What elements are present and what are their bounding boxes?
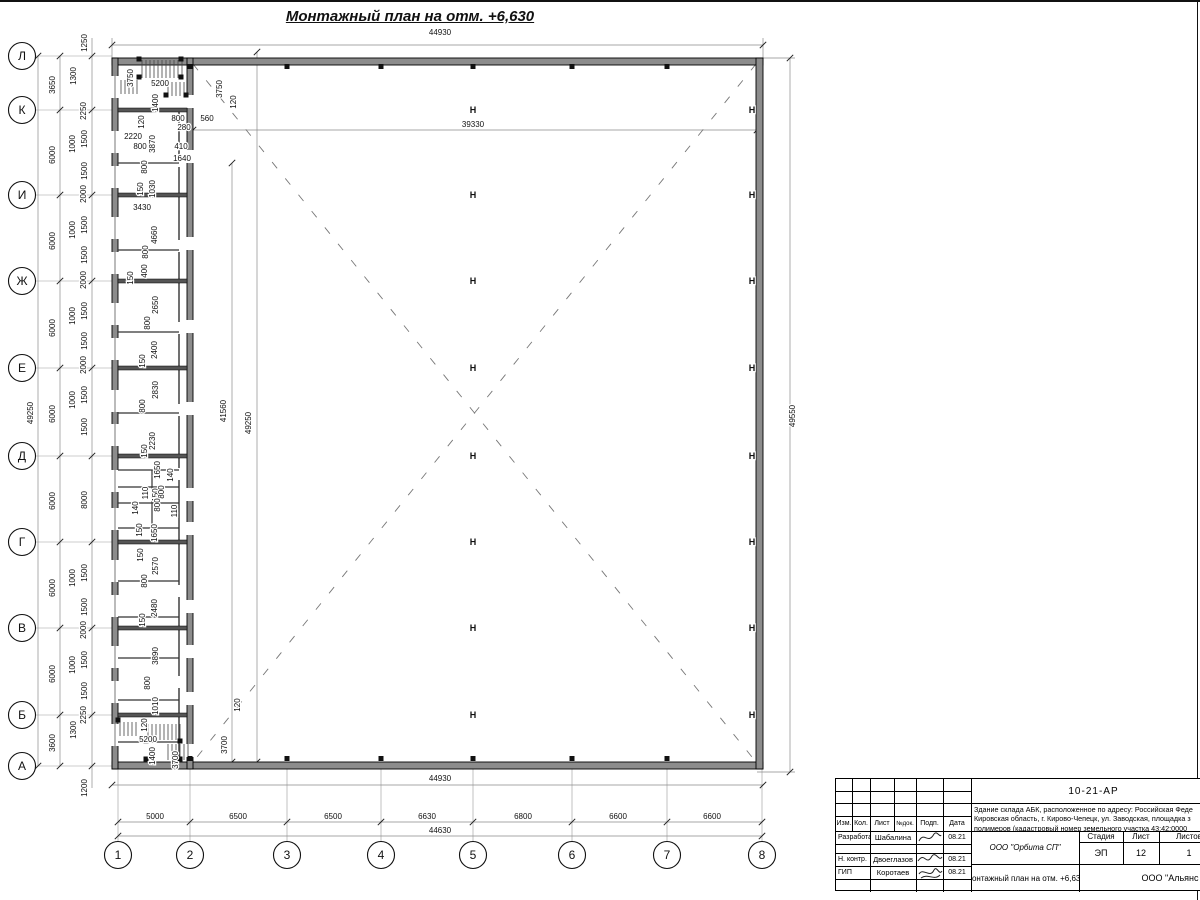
door-opening (186, 645, 193, 658)
door-opening (186, 744, 193, 757)
axis-bubble-label: 6 (569, 848, 576, 862)
dim-label: 150 (140, 444, 149, 458)
axis-bubble-label: Ж (16, 274, 27, 288)
dim-label: 1000 (68, 391, 77, 409)
stair-column (179, 57, 184, 62)
door-opening (186, 320, 193, 333)
dim-label: 49550 (788, 404, 797, 427)
h-column-symbol: H (470, 451, 477, 461)
dim-label: 1200 (80, 779, 89, 797)
dim-label: 6000 (48, 492, 57, 510)
plan-drawing: HHHHHHHHHHHHHHHHЛКИЖЕДГВБА12345678449304… (0, 0, 1200, 900)
tb-role-ncontrol: Н. контр. (838, 853, 871, 866)
tb-line (836, 844, 971, 845)
dim-label: 6800 (514, 812, 532, 821)
tb-col-kol: Кол. (852, 816, 870, 831)
dim-label: 1500 (80, 162, 89, 180)
dim-label: 3600 (48, 734, 57, 752)
dim-label: 1650 (153, 461, 162, 479)
column-square (285, 64, 290, 69)
dim-label: 120 (233, 698, 242, 712)
h-column-symbol: H (749, 451, 756, 461)
dim-label: 5000 (146, 812, 164, 821)
tb-address-line3: полимеров (кадастровый номер земельного … (971, 824, 1200, 831)
dim-label: 150 (136, 548, 145, 562)
dim-label: 800 (141, 245, 150, 259)
column-square (570, 64, 575, 69)
wall-top (112, 58, 763, 65)
stair-column (137, 57, 142, 62)
dim-label: 120 (137, 115, 146, 129)
dim-label: 1650 (150, 524, 159, 542)
dim-label: 1000 (68, 656, 77, 674)
dim-label: 6000 (48, 405, 57, 423)
axis-bubble-label: 2 (187, 848, 194, 862)
axis-bubble-label: К (19, 103, 26, 117)
door-opening (177, 676, 181, 688)
tb-date-ncontrol: 08.21 (943, 853, 971, 866)
door-opening (186, 522, 193, 535)
dim-label: 110 (141, 486, 150, 499)
column-square (471, 64, 476, 69)
dim-label: 2220 (124, 132, 142, 141)
door-opening (177, 585, 181, 597)
dim-label: 1500 (80, 216, 89, 234)
dim-label: 2000 (79, 185, 88, 203)
h-column-symbol: H (749, 190, 756, 200)
dim-label: 2650 (151, 296, 160, 314)
dim-label: 2480 (150, 599, 159, 617)
column-square (665, 64, 670, 69)
dim-label: 800 (153, 498, 162, 512)
door-opening (186, 600, 193, 613)
dim-label: 6000 (48, 319, 57, 337)
dim-label: 1300 (69, 721, 78, 739)
dim-label: 3890 (151, 647, 160, 665)
tb-stage-label: Стадия (1079, 831, 1123, 842)
dim-label: 1500 (80, 246, 89, 264)
h-column-symbol: H (470, 710, 477, 720)
dim-label: 150 (136, 182, 145, 196)
dim-label: 410 (174, 142, 188, 151)
dim-label: 2830 (151, 381, 160, 399)
tb-address-line1: Здание склада АБК, расположенное по адре… (971, 803, 1200, 814)
axis-bubble-label: В (18, 621, 26, 635)
dim-label: 3870 (148, 135, 157, 153)
dim-label: 800 (171, 114, 185, 123)
stair-column (184, 93, 189, 98)
h-column-symbol: H (470, 190, 477, 200)
axis-bubble-label: Б (18, 708, 26, 722)
dim-label: 8000 (80, 491, 89, 509)
axis-bubble-label: 5 (470, 848, 477, 862)
dim-label: 6000 (48, 146, 57, 164)
dim-label: 110 (170, 504, 179, 517)
axis-bubble-label: Л (18, 49, 26, 63)
door-opening (186, 402, 193, 415)
axis-bubble-label: А (18, 759, 26, 773)
dim-label: 150 (126, 271, 135, 285)
h-column-symbol: H (470, 276, 477, 286)
axis-bubble-label: 7 (664, 848, 671, 862)
signature-scribbles (916, 829, 943, 884)
dim-label: 1500 (80, 564, 89, 582)
dim-label: 2250 (79, 706, 88, 724)
dim-label: 3700 (171, 751, 180, 769)
dim-label: 6600 (609, 812, 627, 821)
dim-label: 120 (140, 718, 149, 732)
dim-label: 1300 (69, 67, 78, 85)
h-column-symbol: H (749, 537, 756, 547)
dim-label: 6000 (48, 232, 57, 250)
tb-name-developer: Шабалина (870, 831, 916, 844)
dim-label: 49250 (244, 411, 253, 434)
h-column-symbol: H (470, 537, 477, 547)
tb-org: ООО "Орбита СП" (971, 831, 1079, 864)
stair-column (179, 75, 184, 80)
wall-bottom (112, 762, 763, 769)
h-column-symbol: H (470, 623, 477, 633)
stair-column (137, 75, 142, 80)
axis-bubble-label: Г (19, 535, 26, 549)
dim-label: 1500 (80, 130, 89, 148)
dim-label: 2000 (79, 271, 88, 289)
dim-label: 150 (135, 523, 144, 537)
dim-label: 1250 (80, 34, 89, 52)
dim-label: 800 (157, 485, 166, 499)
partition-thick (118, 366, 187, 370)
dim-label: 44930 (429, 774, 452, 783)
dim-label: 1500 (80, 651, 89, 669)
door-opening (186, 488, 193, 501)
dim-label: 5200 (139, 735, 157, 744)
door-opening (177, 404, 181, 416)
dim-label: 2250 (79, 102, 88, 120)
dim-label: 1640 (173, 154, 191, 163)
dim-label: 1000 (68, 569, 77, 587)
dim-label: 44630 (429, 826, 452, 835)
tb-sheet-value: 12 (1123, 842, 1159, 864)
dim-label: 1500 (80, 682, 89, 700)
column-square (570, 756, 575, 761)
dim-label: 150 (138, 613, 147, 627)
dim-label: 140 (131, 501, 140, 515)
dim-label: 150 (138, 354, 147, 368)
dim-label: 280 (177, 123, 191, 132)
dim-label: 1000 (68, 135, 77, 153)
column-square (471, 756, 476, 761)
tb-address: Здание склада АБК, расположенное по адре… (971, 803, 1200, 831)
h-column-symbol: H (749, 363, 756, 373)
dim-label: 560 (200, 114, 214, 123)
h-column-symbol: H (749, 623, 756, 633)
dim-label: 140 (166, 468, 175, 482)
dim-label: 800 (140, 160, 149, 174)
dim-label: 2570 (151, 557, 160, 575)
column-square (379, 756, 384, 761)
tb-stage-value: ЭП (1079, 842, 1123, 864)
tb-col-data: Дата (943, 816, 971, 831)
tb-col-izm: Изм. (836, 816, 852, 831)
partition-thick (118, 626, 187, 630)
column-square (188, 756, 193, 761)
dim-label: 1030 (148, 180, 157, 198)
dim-label: 6000 (48, 665, 57, 683)
column-square (665, 756, 670, 761)
tb-date-gip: 08.21 (943, 866, 971, 879)
wall-right (756, 58, 763, 769)
dim-label: 6600 (703, 812, 721, 821)
dim-label: 1500 (80, 332, 89, 350)
column-square (188, 64, 193, 69)
tb-line (836, 879, 971, 880)
axis-bubble-label: 1 (115, 848, 122, 862)
dim-label: 1400 (151, 94, 160, 112)
dim-label: 6000 (48, 579, 57, 597)
dim-label: 2000 (79, 356, 88, 374)
drawing-sheet: Монтажный план на отм. +6,630 HHHHHHHHHH… (0, 0, 1200, 900)
dim-label: 44930 (429, 28, 452, 37)
tb-doc-number: 10-21-АР (971, 779, 1200, 803)
dim-label: 1400 (148, 747, 157, 765)
tb-col-list: Лист (870, 816, 894, 831)
dim-label: 3750 (215, 80, 224, 98)
dim-label: 800 (140, 574, 149, 588)
tb-name-ncontrol: Двоеглазов (870, 853, 916, 866)
dim-label: 2000 (79, 621, 88, 639)
dim-label: 3650 (48, 76, 57, 94)
dim-label: 41560 (219, 399, 228, 422)
h-column-symbol: H (749, 276, 756, 286)
axis-bubble-label: Е (18, 361, 26, 375)
tb-name-gip: Коротаев (870, 866, 916, 879)
axis-bubble-label: 3 (284, 848, 291, 862)
tb-role-gip: ГИП (838, 866, 871, 879)
tb-line (836, 791, 971, 792)
dim-label: 800 (143, 316, 152, 330)
dim-label: 1000 (68, 221, 77, 239)
h-column-symbol: H (470, 363, 477, 373)
dim-label: 3700 (220, 736, 229, 754)
dim-label: 1500 (80, 386, 89, 404)
dim-label: 800 (143, 676, 152, 690)
tb-date-developer: 08.21 (943, 831, 971, 844)
tb-sheets-value: 1 (1159, 842, 1200, 864)
title-block: Изм. Кол. Лист №док. Подп. Дата Разработ… (835, 778, 1200, 891)
stair-column (164, 93, 169, 98)
dim-label: 5200 (151, 79, 169, 88)
tb-role-developer: Разработал (838, 831, 871, 844)
dim-label: 6500 (229, 812, 247, 821)
dim-label: 120 (229, 95, 238, 109)
stair-column (178, 739, 183, 744)
dim-label: 3750 (126, 69, 135, 87)
tb-sheets-label: Листов (1159, 831, 1200, 842)
door-opening (186, 692, 193, 705)
tb-doc-title: Монтажный план на отм. +6,630 (971, 864, 1079, 892)
stair-column (116, 718, 121, 723)
dim-label: 1500 (80, 598, 89, 616)
h-column-symbol: H (749, 710, 756, 720)
axis-bubble-label: И (18, 188, 27, 202)
column-square (285, 756, 290, 761)
tb-company: ООО "Альянс (1079, 864, 1200, 892)
column-square (379, 64, 384, 69)
tb-sheet-label: Лист (1123, 831, 1159, 842)
tb-address-line2: Кировская область, г. Кирово-Чепецк, ул.… (971, 814, 1200, 823)
dim-label: 2400 (150, 341, 159, 359)
dim-label: 1010 (151, 697, 160, 715)
dim-label: 800 (138, 399, 147, 413)
dim-label: 6500 (324, 812, 342, 821)
dim-label: 49250 (26, 401, 35, 424)
dim-label: 6630 (418, 812, 436, 821)
dim-label: 400 (140, 264, 149, 278)
axis-bubble-label: 4 (378, 848, 385, 862)
dim-label: 1000 (68, 307, 77, 325)
dim-label: 1500 (80, 302, 89, 320)
dim-label: 2230 (148, 432, 157, 450)
door-opening (186, 237, 193, 250)
dim-label: 800 (133, 142, 147, 151)
dim-label: 4660 (150, 226, 159, 244)
dim-label: 1500 (80, 418, 89, 436)
partition-thick (118, 454, 187, 458)
dim-label: 3430 (133, 203, 151, 212)
dim-label: 39330 (462, 120, 485, 129)
tb-col-ndok: №док. (894, 816, 916, 831)
axis-bubble-label: 8 (759, 848, 766, 862)
h-column-symbol: H (470, 105, 477, 115)
axis-bubble-label: Д (18, 449, 26, 463)
h-column-symbol: H (749, 105, 756, 115)
